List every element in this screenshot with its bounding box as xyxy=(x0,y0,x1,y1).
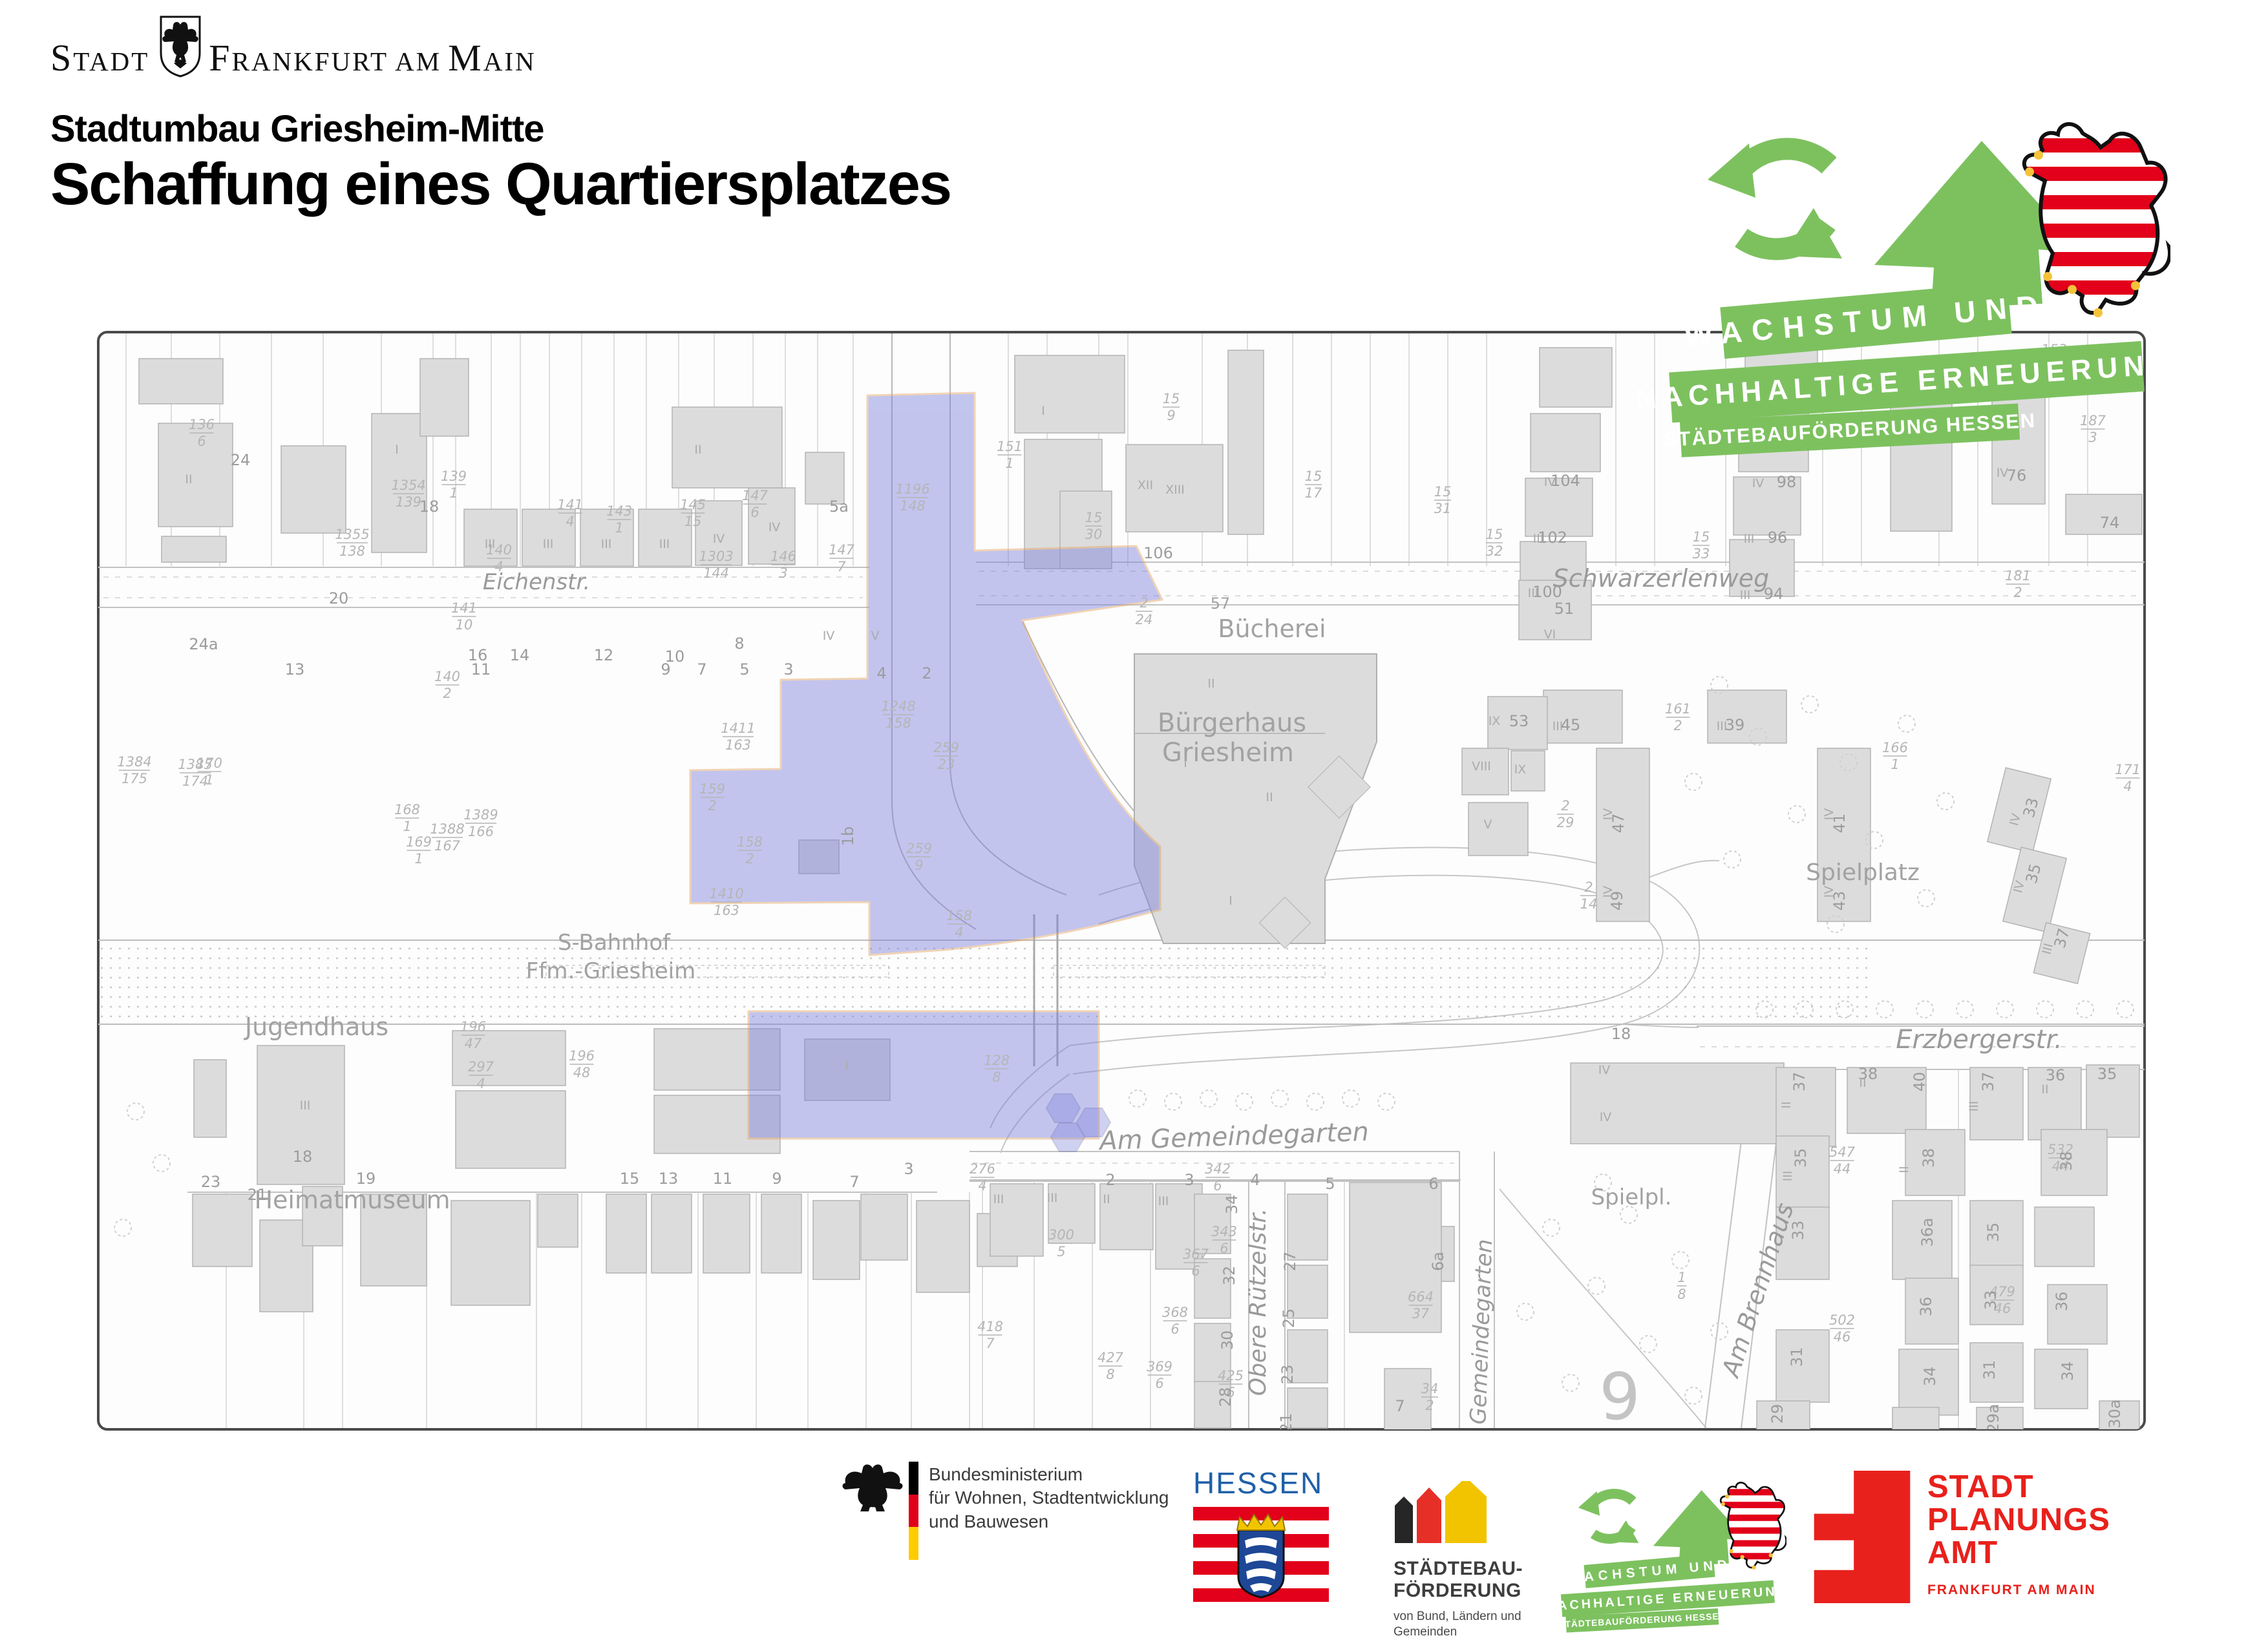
parcel-number: 161 xyxy=(1665,701,1691,717)
storey-numeral: IV xyxy=(1752,476,1765,490)
spa-line4: FRANKFURT AM MAIN xyxy=(1927,1582,2110,1598)
parcel-number: 181 xyxy=(2005,568,2031,583)
parcel-number: 2 xyxy=(708,798,716,814)
storey-numeral: IV xyxy=(1997,466,2009,480)
parcel-number: 139 xyxy=(441,468,467,484)
storey-numeral: IV xyxy=(768,520,781,534)
storey-numeral: III xyxy=(300,1099,311,1113)
house-number: 13 xyxy=(285,660,305,678)
storey-numeral: IV xyxy=(1601,886,1615,898)
parcel-number: 2 xyxy=(1139,595,1148,611)
place-label: Ffm.-Griesheim xyxy=(526,958,695,984)
district-number: 9 xyxy=(1599,1359,1640,1435)
project-line: Stadtumbau Griesheim-Mitte xyxy=(50,110,951,149)
house-number: 21 xyxy=(248,1186,268,1204)
storey-numeral: III xyxy=(1158,1194,1169,1208)
house-number: 33 xyxy=(1789,1221,1807,1241)
parcel-number: 143 xyxy=(606,503,632,519)
storey-numeral: V xyxy=(1484,817,1492,832)
staedtebau-line1: STÄDTEBAU- xyxy=(1394,1558,1581,1580)
parcel-number: 9 xyxy=(915,857,923,873)
parcel-number: 145 xyxy=(680,497,706,512)
storey-numeral: I xyxy=(395,443,399,457)
parcel-number: 138 xyxy=(339,543,365,559)
place-label: S-Bahnhof xyxy=(558,930,671,956)
three-houses-icon xyxy=(1394,1481,1490,1546)
house-number: 6a xyxy=(1429,1252,1447,1271)
house-number: 3 xyxy=(1184,1171,1194,1189)
parcel-number: 4 xyxy=(494,559,503,574)
parcel-number: 1411 xyxy=(721,720,755,736)
house-number: 24 xyxy=(231,451,251,469)
parcel-number: 141 xyxy=(451,600,477,616)
spa-line1: STADT xyxy=(1927,1471,2110,1504)
storey-numeral: II xyxy=(1859,1076,1866,1090)
parcel-number: 30 xyxy=(1085,527,1103,542)
parcel-number: 31 xyxy=(1434,501,1452,516)
parcel-number: 15 xyxy=(1085,510,1103,525)
parcel-number: 1 xyxy=(1005,456,1013,471)
street-label: Erzbergerstr. xyxy=(1896,1025,2062,1055)
parcel-number: 166 xyxy=(1882,740,1908,755)
parcel-number: 10 xyxy=(456,617,473,633)
bund-line3: und Bauwesen xyxy=(929,1510,1169,1533)
parcel-number: 15 xyxy=(1163,391,1180,406)
parcel-number: 171 xyxy=(2115,762,2141,777)
parcel-number: 276 xyxy=(970,1161,995,1177)
city-logo-word: am xyxy=(395,39,441,77)
place-label: Heimatmuseum xyxy=(254,1186,450,1214)
parcel-number: 2 xyxy=(1425,1398,1434,1413)
parcel-number: 37 xyxy=(1412,1306,1430,1321)
parcel-number: 259 xyxy=(933,740,959,755)
poster-page: { "header": { "city_logo": {"word1": "St… xyxy=(0,0,2268,1603)
storey-numeral: III xyxy=(1717,719,1728,733)
house-number: 34 xyxy=(1223,1195,1241,1215)
house-number: 36a xyxy=(1918,1217,1936,1246)
house-number: 5 xyxy=(1325,1175,1335,1193)
house-number: 11 xyxy=(713,1170,733,1188)
parcel-number: 29 xyxy=(1557,815,1574,830)
storey-numeral: XIII xyxy=(1165,483,1185,497)
parcel-number: 300 xyxy=(1048,1227,1074,1243)
house-number: 106 xyxy=(1143,544,1173,562)
storey-numeral: IX xyxy=(1489,714,1501,728)
parcel-number: 2 xyxy=(1584,879,1593,895)
hessen-lion-icon xyxy=(2015,115,2170,335)
storey-numeral: III xyxy=(601,537,612,551)
house-number: 51 xyxy=(1554,600,1574,618)
storey-numeral: II xyxy=(1897,1166,1911,1173)
house-number: 34 xyxy=(1921,1367,1939,1387)
storey-numeral: I xyxy=(1183,756,1187,770)
parcel-number: 163 xyxy=(714,903,739,918)
storey-numeral: III xyxy=(543,537,554,551)
house-number: 9 xyxy=(661,660,670,678)
house-number: 3 xyxy=(783,660,793,678)
parcel-number: 5 xyxy=(1057,1244,1065,1259)
parcel-number: 6 xyxy=(1213,1178,1222,1193)
page-title: Schaffung eines Quartiersplatzes xyxy=(50,153,951,216)
parcel-number: 151 xyxy=(997,439,1023,454)
house-number: 6 xyxy=(1428,1175,1438,1193)
parcel-number: 4 xyxy=(2123,779,2132,794)
house-number: 8 xyxy=(734,635,744,653)
house-number: 30 xyxy=(1218,1330,1236,1351)
parcel-number: 6 xyxy=(1171,1321,1179,1337)
bund-line1: Bundesministerium xyxy=(929,1463,1169,1486)
place-label: 57 xyxy=(1211,594,1231,613)
storey-numeral: IV xyxy=(1600,1110,1612,1124)
parcel-number: 342 xyxy=(1205,1161,1231,1177)
parcel-number: 158 xyxy=(737,834,763,850)
parcel-number: 7 xyxy=(837,559,846,574)
house-number: 20 xyxy=(329,589,349,607)
spa-line2: PLANUNGS xyxy=(1927,1504,2110,1537)
house-number: 40 xyxy=(1911,1072,1929,1092)
house-number: 18 xyxy=(419,498,440,516)
parcel-number: 369 xyxy=(1147,1359,1172,1374)
header: Stadt Frankfurt am Main xyxy=(50,16,536,77)
bundesministerium-logo: Bundesministerium für Wohnen, Stadtentwi… xyxy=(840,1462,1169,1560)
house-number: 14 xyxy=(510,646,530,664)
parcel-number: 196 xyxy=(569,1048,595,1064)
parcel-number: 1 xyxy=(615,520,623,536)
house-number: 34 xyxy=(2059,1361,2077,1382)
parcel-number: 146 xyxy=(770,549,796,564)
storey-numeral: II xyxy=(1207,677,1214,691)
parcel-number: 343 xyxy=(1211,1224,1237,1239)
stadtplanungsamt-mark-icon xyxy=(1814,1471,1911,1603)
house-number: 11 xyxy=(471,660,491,678)
house-number: 19 xyxy=(356,1170,376,1188)
german-flag-bar xyxy=(909,1462,918,1560)
parcel-number: 8 xyxy=(1677,1287,1686,1302)
parcel-number: 32 xyxy=(1486,543,1503,559)
hessen-logo: HESSEN xyxy=(1193,1466,1329,1606)
parcel-number: 147 xyxy=(829,542,855,558)
parcel-number: 175 xyxy=(122,771,147,786)
parcel-number: 1 xyxy=(414,851,423,867)
house-number: 29a xyxy=(1984,1403,2002,1433)
parcel-number: 1 xyxy=(1891,757,1899,772)
storey-numeral: III xyxy=(1744,532,1755,546)
house-number: 7 xyxy=(697,660,706,678)
house-number: 13 xyxy=(659,1170,679,1188)
parcel-number: 46 xyxy=(1834,1329,1851,1345)
storey-numeral: I xyxy=(1041,404,1045,418)
parcel-number: 4 xyxy=(566,514,574,529)
wachstum-logo-small: WACHSTUM UND NACHHALTIGE ERNEUERUNG STÄD… xyxy=(1565,1473,1786,1632)
parcel-number: 418 xyxy=(977,1319,1003,1334)
parcel-number: 368 xyxy=(1162,1305,1188,1320)
storey-numeral: I xyxy=(845,1058,849,1073)
storey-numeral: III xyxy=(659,537,670,551)
house-number: 96 xyxy=(1768,529,1788,547)
storey-numeral: III xyxy=(1553,719,1563,733)
house-number: 76 xyxy=(2007,467,2027,485)
spa-text: STADT PLANUNGS AMT FRANKFURT AM MAIN xyxy=(1927,1471,2110,1603)
parcel-number: 2 xyxy=(745,851,754,867)
parcel-number: 140 xyxy=(434,669,460,684)
house-number: 98 xyxy=(1777,473,1797,491)
parcel-number: 166 xyxy=(468,824,494,839)
place-label: Spielplatz xyxy=(1806,859,1920,886)
parcel-number: 1385 xyxy=(178,757,212,772)
storey-numeral: XII xyxy=(1138,478,1153,492)
house-number: 12 xyxy=(594,646,614,664)
parcel-number: 9 xyxy=(1167,408,1175,423)
hessen-coat-of-arms-icon xyxy=(1193,1507,1329,1603)
house-number: 27 xyxy=(1281,1252,1299,1272)
house-number: 38 xyxy=(1920,1148,1938,1168)
storey-numeral: III xyxy=(1533,532,1544,546)
house-number: 5a xyxy=(829,498,849,516)
parcel-number: 128 xyxy=(984,1053,1010,1068)
parcel-number: 169 xyxy=(406,834,432,850)
parcel-number: 664 xyxy=(1408,1289,1434,1305)
parcel-number: 15 xyxy=(684,514,702,529)
parcel-number: 1389 xyxy=(463,807,498,823)
street-label: Obere Rützelstr. xyxy=(1245,1208,1271,1396)
parcel-number: 136 xyxy=(189,417,215,432)
storey-numeral: II xyxy=(1103,1192,1110,1206)
street-label: Schwarzerlenweg xyxy=(1553,564,1770,593)
parcel-number: 4 xyxy=(978,1178,986,1193)
storey-numeral: IX xyxy=(1514,762,1527,777)
parcel-number: 163 xyxy=(725,737,751,753)
storey-numeral: V xyxy=(871,629,880,643)
parcel-number: 33 xyxy=(1693,546,1710,562)
hessen-lion-icon xyxy=(1717,1478,1786,1577)
parcel-number: 148 xyxy=(900,498,926,514)
house-number: 45 xyxy=(1561,716,1581,734)
parcel-number: 17 xyxy=(1305,485,1322,501)
parcel-number: 6 xyxy=(750,505,759,520)
house-number: 37 xyxy=(1790,1072,1808,1092)
storey-numeral: VIII xyxy=(1472,759,1491,773)
parcel-number: 141 xyxy=(557,497,583,512)
house-number: 25 xyxy=(1280,1309,1298,1329)
frankfurt-eagle-shield-icon xyxy=(160,16,201,81)
house-number: 23 xyxy=(1278,1365,1297,1385)
storey-numeral: IV xyxy=(1544,475,1556,489)
parcel-number: 1354 xyxy=(391,478,425,493)
spa-line3: AMT xyxy=(1927,1537,2110,1570)
parcel-number: 47 xyxy=(465,1036,482,1051)
parcel-number: 1303 xyxy=(699,549,733,564)
storey-numeral: II xyxy=(2041,1082,2048,1097)
house-number: 23 xyxy=(201,1173,221,1191)
parcel-number: 367 xyxy=(1183,1246,1209,1262)
title-block: Stadtumbau Griesheim-Mitte Schaffung ein… xyxy=(50,110,951,215)
house-number: 32 xyxy=(1220,1266,1238,1286)
house-number: 18 xyxy=(293,1148,313,1166)
parcel-number: 144 xyxy=(703,565,729,581)
house-number: 39 xyxy=(1725,716,1745,734)
storey-numeral: IV xyxy=(1601,808,1615,821)
parcel-number: 158 xyxy=(885,715,911,731)
storey-numeral: III xyxy=(485,537,496,551)
parcel-number: 48 xyxy=(573,1065,591,1080)
parcel-number: 1 xyxy=(449,485,458,501)
staedtebau-sub2: Gemeinden xyxy=(1394,1624,1581,1640)
staedtebau-line2: FÖRDERUNG xyxy=(1394,1580,1581,1602)
parcel-number: 2 xyxy=(443,686,451,701)
house-number: 35 xyxy=(1984,1223,2002,1243)
house-number: 18 xyxy=(1611,1025,1631,1043)
place-label: Bücherei xyxy=(1218,615,1326,643)
house-number: 5 xyxy=(739,660,749,678)
storey-numeral: III xyxy=(993,1192,1004,1206)
parcel-number: 8 xyxy=(992,1069,1001,1085)
house-number: 31 xyxy=(1788,1347,1806,1367)
place-label: Griesheim xyxy=(1162,738,1294,768)
city-logo: Stadt Frankfurt am Main xyxy=(50,16,536,77)
parcel-number: 4 xyxy=(955,925,963,940)
parcel-number: 44 xyxy=(1834,1161,1851,1177)
house-number: 2 xyxy=(922,664,931,682)
storey-numeral: I xyxy=(1229,894,1233,908)
storey-numeral: III xyxy=(1047,1191,1058,1205)
parcel-number: 2 xyxy=(1673,718,1682,733)
parcel-number: 502 xyxy=(1829,1312,1855,1328)
place-label: Jugendhaus xyxy=(244,1013,388,1041)
storey-numeral: VI xyxy=(1544,627,1556,642)
stadtplanungsamt-logo: STADT PLANUNGS AMT FRANKFURT AM MAIN xyxy=(1814,1471,2110,1603)
quartiersplatz-area-south xyxy=(748,1011,1099,1139)
house-number: 94 xyxy=(1764,585,1784,603)
house-number: 38 xyxy=(2057,1151,2075,1172)
parcel-number: 425 xyxy=(1218,1368,1244,1383)
parcel-number: 24 xyxy=(1136,612,1153,627)
house-number: 35 xyxy=(2097,1065,2117,1083)
house-number: 4 xyxy=(1250,1171,1260,1189)
house-number: 9 xyxy=(772,1170,781,1188)
parcel-number: 4 xyxy=(476,1076,485,1091)
parcel-number: 196 xyxy=(460,1019,486,1035)
storey-numeral: IV xyxy=(713,532,725,546)
storey-numeral: III xyxy=(1740,588,1751,602)
place-label: Bürgerhaus xyxy=(1158,708,1306,738)
parcel-number: 1384 xyxy=(117,754,151,770)
house-number: 74 xyxy=(2100,514,2120,532)
staedtebau-subtext: von Bund, Ländern und Gemeinden xyxy=(1394,1609,1581,1640)
house-number: 37 xyxy=(1979,1072,1997,1092)
parcel-number: 2 xyxy=(1561,798,1569,814)
parcel-number: 1248 xyxy=(881,699,915,714)
parcel-number: 158 xyxy=(946,908,972,923)
parcel-number: 6 xyxy=(1155,1376,1163,1391)
bund-text: Bundesministerium für Wohnen, Stadtentwi… xyxy=(929,1463,1169,1533)
parcel-number: 139 xyxy=(396,494,421,510)
staedtebaufoerderung-logo: STÄDTEBAU- FÖRDERUNG von Bund, Ländern u… xyxy=(1394,1481,1581,1640)
parcel-number: 174 xyxy=(182,773,208,789)
parcel-number: 6 xyxy=(1220,1241,1228,1256)
house-number: 33 xyxy=(1982,1290,2000,1310)
house-number: 35 xyxy=(1792,1148,1810,1168)
storey-numeral: II xyxy=(1779,1101,1794,1108)
house-number: 7 xyxy=(1395,1397,1404,1415)
storey-numeral: IV xyxy=(1598,1063,1611,1077)
parcel-number: 1355 xyxy=(335,527,369,542)
parcel-number: 427 xyxy=(1097,1350,1124,1365)
house-number: 15 xyxy=(620,1170,640,1188)
parcel-number: 15 xyxy=(1693,529,1710,545)
house-number: 24a xyxy=(189,635,218,653)
house-number: 3 xyxy=(904,1160,913,1178)
city-logo-word: Stadt xyxy=(50,39,149,77)
parcel-number: 14 xyxy=(1580,896,1598,912)
storey-numeral: III xyxy=(1528,586,1539,600)
parcel-number: 259 xyxy=(906,841,932,856)
parcel-number: 6 xyxy=(1191,1263,1200,1279)
parcel-number: 547 xyxy=(1829,1144,1856,1160)
parcel-number: 1 xyxy=(1677,1270,1686,1285)
wachstum-logo: WACHSTUM UND NACHHALTIGE ERNEUERUNG STÄD… xyxy=(1679,103,2170,456)
staedtebau-text: STÄDTEBAU- FÖRDERUNG xyxy=(1394,1558,1581,1601)
house-number: 31 xyxy=(1980,1360,1998,1380)
bund-line2: für Wohnen, Stadtentwicklung xyxy=(929,1486,1169,1509)
storey-numeral: III xyxy=(1781,1171,1795,1182)
parcel-number: 159 xyxy=(699,781,725,797)
house-number: 28 xyxy=(1216,1387,1235,1407)
storey-numeral: II xyxy=(694,443,701,457)
storey-numeral: III xyxy=(1967,1101,1981,1112)
parcel-number: 147 xyxy=(742,488,768,503)
house-number: 30a xyxy=(2106,1399,2124,1428)
parcel-number: 8 xyxy=(1106,1367,1114,1382)
parcel-number: 1388 xyxy=(430,821,464,837)
house-number: 7 xyxy=(849,1173,859,1191)
parcel-number: 3 xyxy=(779,565,787,581)
parcel-number: 23 xyxy=(938,757,955,772)
bundesadler-icon xyxy=(840,1462,905,1513)
parcel-number: 2 xyxy=(2013,585,2022,600)
city-logo-word: Main xyxy=(448,39,536,77)
parcel-number: 7 xyxy=(986,1336,995,1351)
house-number: 4 xyxy=(876,664,886,682)
parcel-number: 6 xyxy=(197,434,206,449)
storey-numeral: IV xyxy=(823,629,835,643)
hessen-title: HESSEN xyxy=(1193,1466,1329,1500)
storey-numeral: II xyxy=(1266,790,1273,804)
house-number: 1b xyxy=(839,826,857,846)
parcel-number: 1 xyxy=(403,819,411,834)
parcel-number: 168 xyxy=(394,802,420,817)
parcel-number: 15 xyxy=(1305,468,1322,484)
house-number: 2 xyxy=(1105,1171,1115,1189)
house-number: 36 xyxy=(2046,1066,2066,1084)
parcel-number: 15 xyxy=(1434,484,1452,499)
storey-numeral: IV xyxy=(1822,886,1836,898)
city-logo-word: Frankfurt xyxy=(209,39,388,77)
parcel-number: 1410 xyxy=(709,886,743,901)
parcel-number: 15 xyxy=(1486,527,1503,542)
storey-numeral: II xyxy=(185,472,192,487)
house-number: 29 xyxy=(1768,1404,1786,1424)
parcel-number: 297 xyxy=(468,1059,494,1075)
place-label: Spielpl. xyxy=(1591,1184,1672,1210)
parcel-number: 167 xyxy=(434,838,461,854)
parcel-number: 34 xyxy=(1421,1381,1439,1396)
house-number: 36 xyxy=(2053,1292,2071,1312)
parcel-number: 1196 xyxy=(895,481,929,497)
house-number: 53 xyxy=(1509,712,1529,730)
house-number: 36 xyxy=(1917,1297,1935,1317)
storey-numeral: IV xyxy=(1822,808,1836,821)
